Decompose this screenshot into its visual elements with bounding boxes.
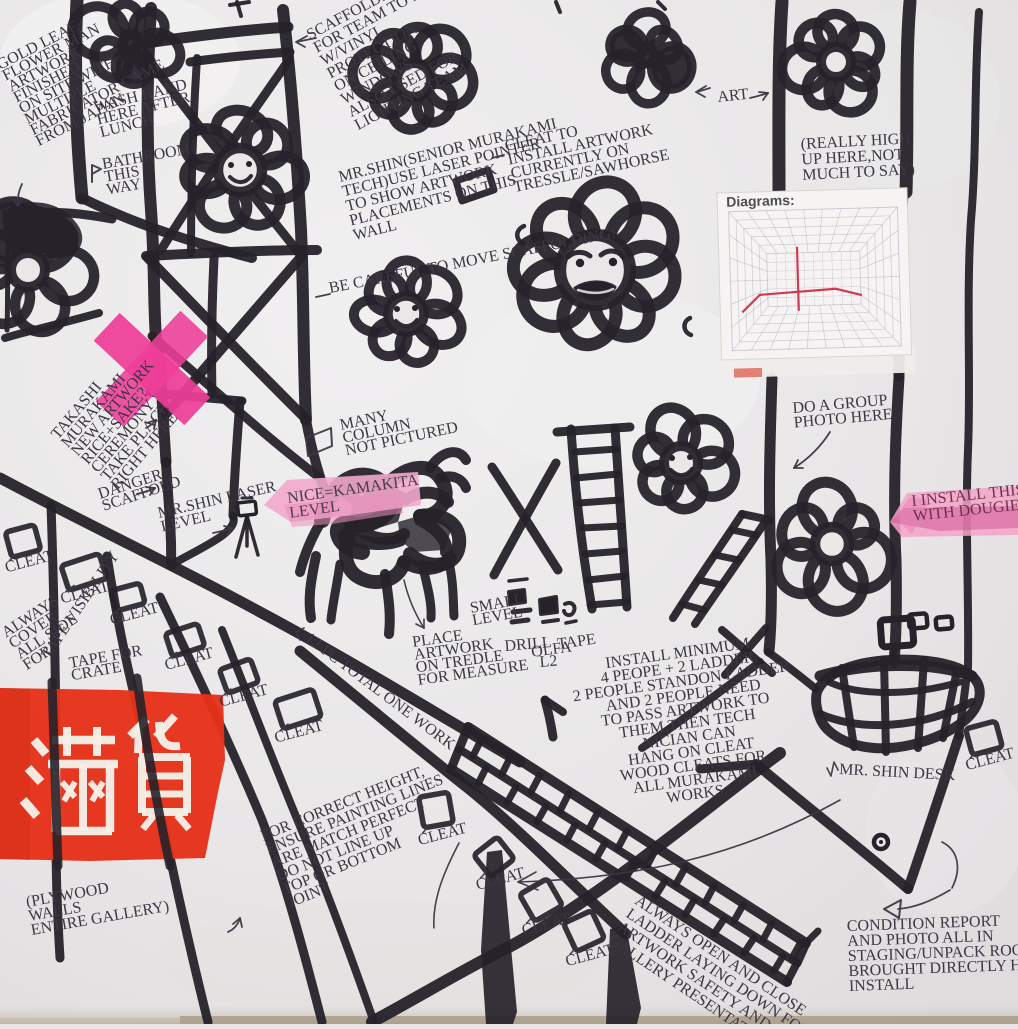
svg-text:(REALLY HIGHUP HERE,NOTMUCH TO: (REALLY HIGHUP HERE,NOTMUCH TO SAY)	[800, 130, 915, 184]
svg-text:L2: L2	[539, 652, 558, 670]
svg-text:ART: ART	[717, 86, 750, 106]
svg-text:Diagrams:: Diagrams:	[726, 192, 795, 210]
